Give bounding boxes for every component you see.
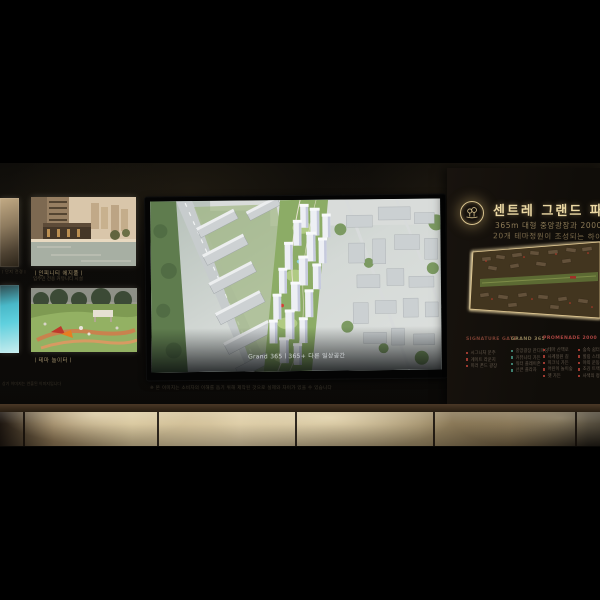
aerial-render-image: Grand 365ㅣ365+ 다른 일상공간 — [150, 198, 442, 372]
bullet-icon — [511, 356, 513, 358]
legend-item: 펫 가든 — [548, 373, 561, 379]
main-screen: Grand 365ㅣ365+ 다른 일상공간 — [145, 194, 447, 380]
bullet-icon — [578, 362, 580, 364]
bullet-icon — [543, 362, 545, 364]
legend-item: 미러 폰드 광장 — [471, 363, 497, 369]
site-plan — [458, 241, 600, 337]
cabinet-seam — [575, 412, 577, 446]
legend-column-1-items: 시그니처 문주 게이트 라운지 미러 폰드 광장 — [466, 350, 497, 369]
legend-column-3-items: 테마 산책로 사계정원 길 피크닉 가든 어린이 놀이숲 펫 가든 — [543, 347, 573, 379]
legend-item: 시그니처 문주 — [471, 350, 496, 356]
twin-trees-emblem-icon — [460, 201, 484, 225]
cabinet-front — [0, 412, 600, 446]
bullet-icon — [543, 375, 545, 377]
legend-item: 사색의 정원 — [583, 373, 600, 379]
cabinet-seam — [295, 412, 297, 446]
bullet-icon — [466, 365, 468, 367]
cabinet-seam — [23, 412, 25, 446]
legend-item: 피크닉 가든 — [548, 360, 569, 366]
bullet-icon — [578, 375, 580, 377]
gallery-panel-street-view — [0, 198, 19, 267]
legend-item: 사계정원 길 — [548, 354, 569, 360]
bullet-icon — [466, 358, 468, 360]
bullet-icon — [511, 350, 513, 352]
bullet-icon — [578, 355, 580, 357]
cabinet-seam — [157, 412, 159, 446]
legend-column-1-header: SIGNATURE GATE — [466, 337, 517, 342]
legend-column-3b-items: 숲속 쉼터 힐링 스테이션 야외 운동공간 조깅 트랙 사색의 정원 — [578, 347, 600, 379]
bullet-icon — [466, 352, 468, 354]
legend-item: 게이트 라운지 — [471, 357, 496, 363]
legend-item: 야외 운동공간 — [583, 360, 600, 366]
pool-panel-subcaption: 입주민 전용 커뮤니티 시설 — [33, 276, 83, 282]
legend-item: 테마 산책로 — [548, 347, 569, 353]
bullet-icon — [578, 368, 580, 370]
playground-panel-caption: ㅣ테마 놀이터ㅣ — [33, 356, 73, 364]
legend-column-3-header: PROMENADE 2000 — [543, 336, 597, 341]
photo-of-showroom-wall: ㅣ단지 전경ㅣ — [0, 0, 600, 600]
bullet-icon — [578, 349, 580, 351]
signage-subtitle-1: 365m 대형 중앙광장과 2000m 산책로 — [495, 220, 600, 231]
bullet-icon — [543, 368, 545, 370]
playground-panel-image — [31, 288, 137, 352]
gallery-panel-playground — [31, 288, 137, 352]
pool-panel-image — [31, 197, 136, 266]
cabinet-counter-top — [0, 404, 600, 412]
disclaimer-text: ※ 본 이미지는 소비자의 이해를 돕기 위해 제작된 것으로 실제와 차이가 … — [150, 385, 370, 391]
legend-item: 워터 플레이존 — [516, 361, 541, 367]
bullet-icon — [511, 369, 513, 371]
legend-item: 힐링 스테이션 — [583, 354, 600, 360]
legend-column-2-header: GRAND 365 — [511, 337, 545, 342]
signage-title: 센트레 그랜드 파크 — [493, 200, 600, 219]
gallery-panel-waterpark — [0, 285, 19, 353]
wall-background: ㅣ단지 전경ㅣ — [0, 163, 600, 447]
cabinet-seam — [433, 412, 435, 446]
gallery-panel-pool — [31, 197, 136, 266]
legend-item: 숲속 쉼터 — [583, 347, 600, 353]
aerial-render-svg — [150, 198, 442, 372]
legend-item: 어린이 놀이숲 — [548, 366, 573, 372]
bullet-icon — [543, 349, 545, 351]
bullet-icon — [511, 363, 513, 365]
gallery-side-note: 상기 이미지는 연출된 이미지입니다 — [2, 381, 61, 387]
legend-item: 커뮤니티 가든 — [516, 355, 541, 361]
bullet-icon — [543, 355, 545, 357]
gallery-edge-caption: ㅣ단지 전경ㅣ — [1, 269, 27, 275]
legend-item: 선큰 플라자 — [516, 367, 537, 373]
legend-item: 조깅 트랙 — [583, 366, 600, 372]
